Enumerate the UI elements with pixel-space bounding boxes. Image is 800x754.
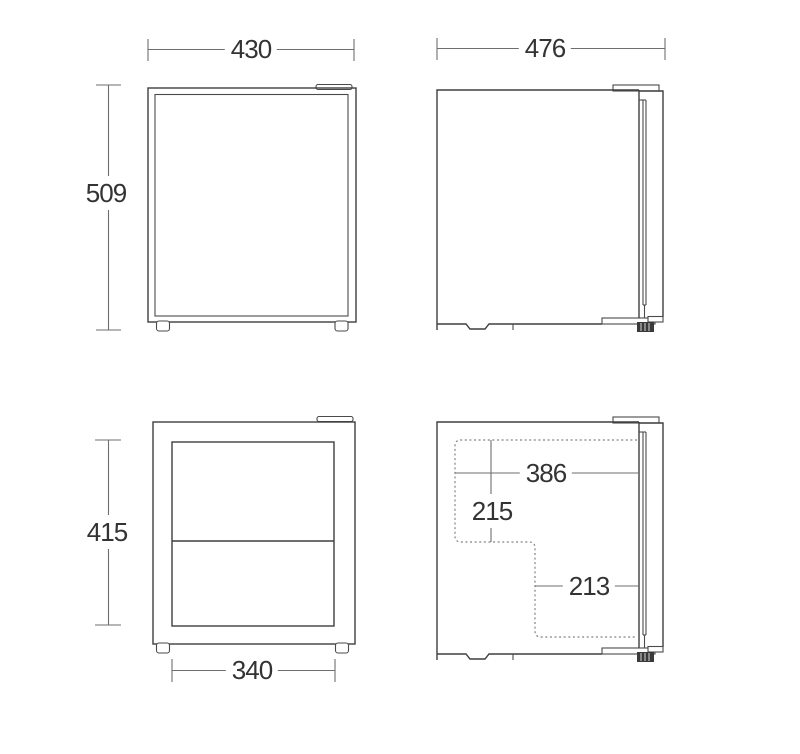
fridge-body-outline — [153, 422, 355, 644]
door-handle — [316, 85, 352, 90]
right-foot — [336, 643, 349, 653]
interior-compartment-outline — [172, 442, 334, 626]
door-bottom-cap — [648, 317, 663, 323]
dim-label-interior-height: 415 — [81, 515, 133, 549]
dim-label-overall-height: 509 — [80, 176, 132, 210]
front-exterior-view — [96, 39, 356, 331]
door-bottom-cap — [648, 647, 663, 653]
door-gasket-lines — [639, 432, 646, 648]
dim-label-interior-depth-upper: 386 — [520, 456, 572, 490]
side-exterior-view — [437, 38, 665, 332]
door-panel-outline — [155, 95, 348, 317]
cabinet-outline — [437, 90, 639, 330]
left-foot — [157, 643, 170, 653]
dimension-drawing: 430 509 476 415 340 386 215 213 — [0, 0, 800, 754]
side-interior-view — [437, 417, 663, 662]
dim-label-interior-height-upper: 215 — [466, 494, 518, 528]
cabinet-bottom-edge — [437, 654, 602, 659]
dim-label-overall-depth: 476 — [519, 31, 571, 65]
dim-label-interior-width: 340 — [226, 653, 278, 687]
left-foot — [157, 321, 170, 331]
dim-label-overall-width: 430 — [225, 32, 277, 66]
fridge-body-outline — [148, 88, 356, 322]
dim-label-interior-depth-lower: 213 — [563, 569, 615, 603]
right-foot — [335, 321, 348, 331]
door-handle — [317, 417, 353, 422]
front-interior-view — [95, 417, 355, 683]
cabinet-bottom-edge — [437, 324, 602, 329]
fridge-dimension-diagram — [0, 0, 800, 754]
door-gasket-lines — [639, 100, 646, 318]
